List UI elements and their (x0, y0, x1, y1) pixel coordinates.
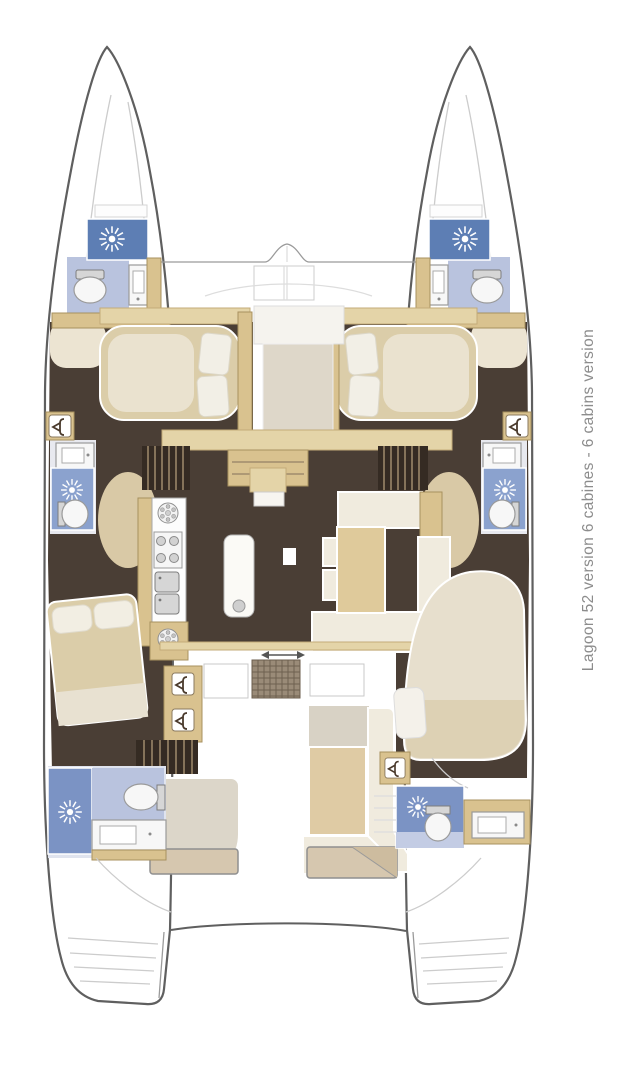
starboard-bed-top (383, 334, 469, 412)
bed-pillow (345, 333, 379, 376)
head-bulkhead (147, 258, 161, 314)
bed-pillow (348, 375, 381, 417)
hanger-icon (385, 758, 405, 778)
island-sink (233, 600, 245, 612)
shower-stall (87, 219, 148, 260)
sink-drain (159, 577, 162, 580)
transom-inner-walls (159, 932, 418, 998)
toilet (489, 500, 515, 528)
shower-stall (429, 219, 490, 260)
bed-pillow (197, 375, 230, 417)
sofa-back-top (308, 705, 370, 747)
sink-drain (438, 298, 441, 301)
sink-drain (149, 833, 152, 836)
sink-drain (137, 298, 140, 301)
sink-drain (87, 454, 90, 457)
hanger-icon (49, 415, 71, 437)
head-aft-trim (92, 850, 166, 860)
bed-pillow (198, 333, 232, 376)
dinette-seat-back (323, 570, 338, 600)
aft-sunpad-starboard (307, 847, 397, 878)
galley-sink-1 (155, 572, 179, 592)
port-hull-stairs (142, 446, 190, 490)
starboard-hull-stairs (378, 446, 428, 490)
toilet (471, 277, 503, 303)
port-bed-headboard (100, 308, 250, 324)
aft-deck-edge (171, 923, 406, 931)
center-forward-berth (263, 344, 333, 432)
sink-drain (515, 824, 518, 827)
port-deck-hatch (95, 205, 147, 217)
head-bulkhead (416, 258, 430, 314)
step-lower (250, 468, 286, 492)
hanger-icon (172, 709, 194, 731)
dinette-bench-forward (338, 492, 422, 528)
plan-title: Lagoon 52 version 6 cabines - 6 cabins v… (580, 329, 598, 671)
bed-pillow (393, 687, 426, 739)
toilet (62, 500, 88, 528)
dinette-table (337, 527, 385, 613)
sink-drain (488, 454, 491, 457)
galley (138, 498, 188, 660)
toilet (124, 784, 158, 810)
hanger-icon (506, 415, 528, 437)
hanger-icon (172, 673, 194, 695)
starboard-bed-headboard (327, 308, 477, 324)
sofa-cushion (309, 747, 366, 835)
sink-basin (133, 271, 144, 293)
bed-pillow (93, 600, 135, 630)
port-aft-head (48, 766, 166, 860)
starboard-deck-hatch (430, 205, 482, 217)
toilet (74, 277, 106, 303)
salon-aft-threshold (160, 642, 452, 650)
cockpit-wardrobe-cabinet (164, 666, 202, 742)
step-landing (254, 492, 284, 506)
toilet (425, 813, 451, 841)
sink-drain (159, 599, 162, 602)
sink-basin (62, 448, 84, 463)
sink-basin (100, 826, 136, 844)
sink-basin (478, 817, 506, 833)
floor-hatch (283, 548, 296, 565)
center-forward-panel (254, 306, 344, 344)
cockpit-seat-starboard (310, 664, 364, 696)
entry-mat (252, 660, 300, 698)
bed-pillow (51, 604, 93, 634)
sliding-door-arrows (261, 651, 305, 659)
sink-basin (493, 448, 515, 463)
sink-basin (433, 271, 444, 293)
forward-crossbeam-line (152, 244, 425, 262)
port-bed-top (108, 334, 194, 412)
galley-sink-2 (155, 594, 179, 614)
round-hatch-icon (158, 503, 178, 523)
dinette-seat-back (323, 538, 338, 566)
floor-plan-page: Lagoon 52 version 6 cabines - 6 cabins v… (0, 0, 618, 1080)
port-bed-step (238, 312, 252, 430)
cockpit-seat-port (204, 664, 248, 698)
floor-plan-svg (0, 0, 618, 1080)
dinette-cabinet (420, 492, 442, 537)
